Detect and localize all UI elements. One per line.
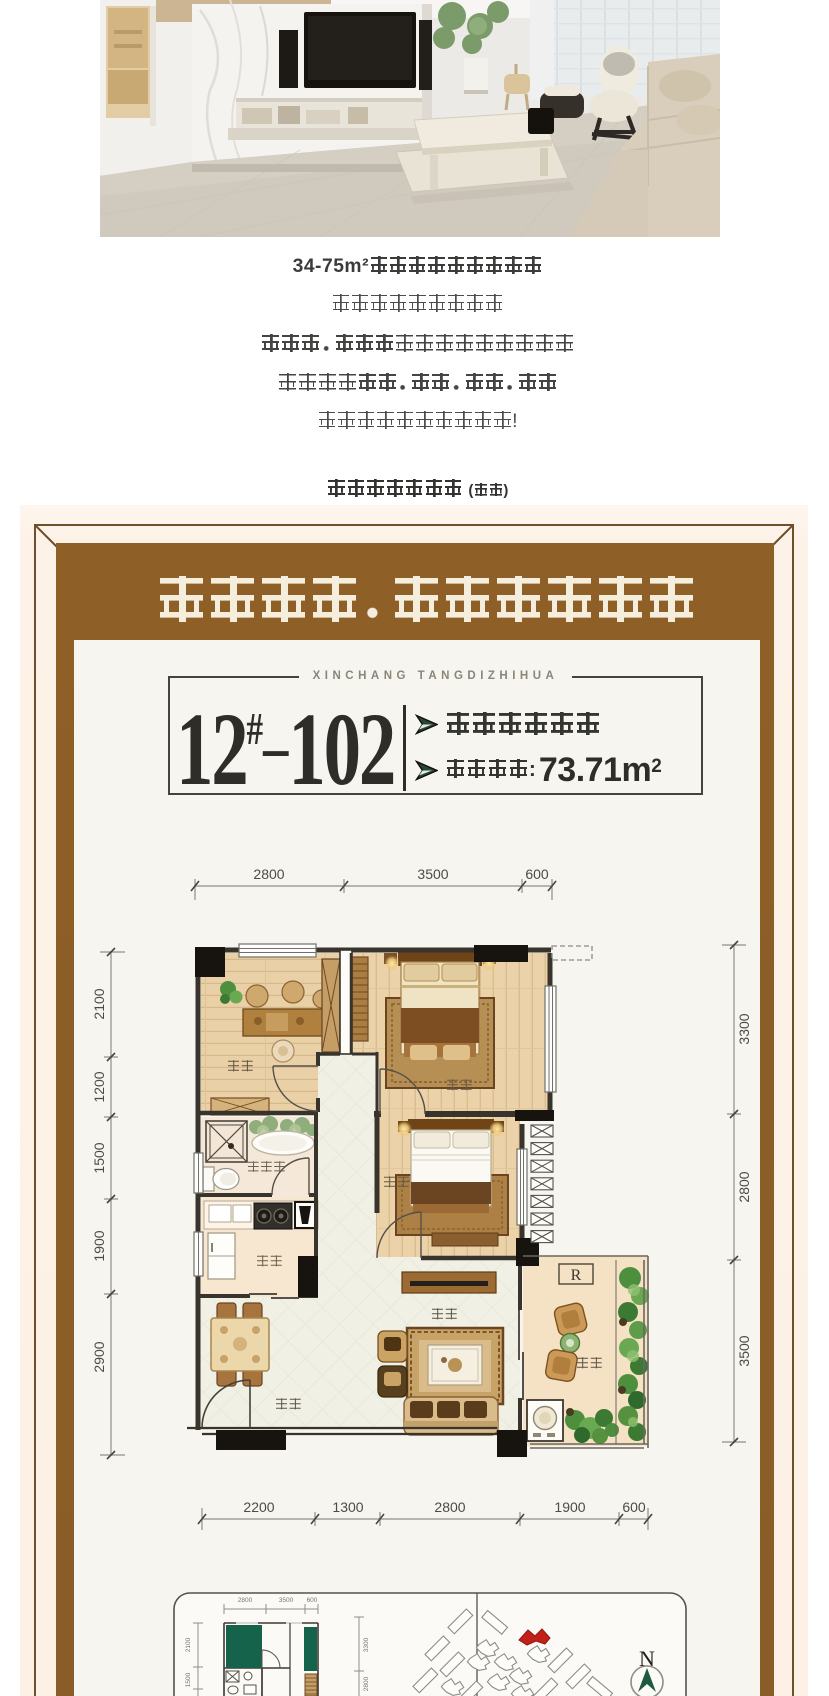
svg-text:3300: 3300 — [363, 1637, 370, 1652]
svg-text:600: 600 — [622, 1499, 646, 1515]
svg-text:R: R — [571, 1267, 582, 1284]
svg-text:2800: 2800 — [434, 1499, 465, 1515]
svg-text:1500: 1500 — [91, 1142, 107, 1173]
svg-text:2200: 2200 — [243, 1499, 274, 1515]
svg-text:2100: 2100 — [91, 988, 107, 1019]
svg-text:2800: 2800 — [363, 1676, 370, 1691]
svg-text:2800: 2800 — [736, 1171, 752, 1202]
svg-text:1500: 1500 — [185, 1672, 192, 1687]
svg-text:1900: 1900 — [554, 1499, 585, 1515]
svg-text:2800: 2800 — [238, 1597, 253, 1604]
svg-text:1300: 1300 — [332, 1499, 363, 1515]
svg-text:N: N — [639, 1646, 655, 1671]
svg-text:600: 600 — [525, 866, 549, 882]
svg-text:3500: 3500 — [279, 1597, 294, 1604]
svg-text:2900: 2900 — [91, 1341, 107, 1372]
svg-text:3500: 3500 — [417, 866, 448, 882]
svg-text:1900: 1900 — [91, 1230, 107, 1261]
svg-text:600: 600 — [307, 1597, 318, 1604]
svg-text:2100: 2100 — [185, 1637, 192, 1652]
svg-text:3500: 3500 — [736, 1335, 752, 1366]
svg-text:1200: 1200 — [91, 1071, 107, 1102]
svg-text:3300: 3300 — [736, 1013, 752, 1044]
svg-text:2800: 2800 — [253, 866, 284, 882]
